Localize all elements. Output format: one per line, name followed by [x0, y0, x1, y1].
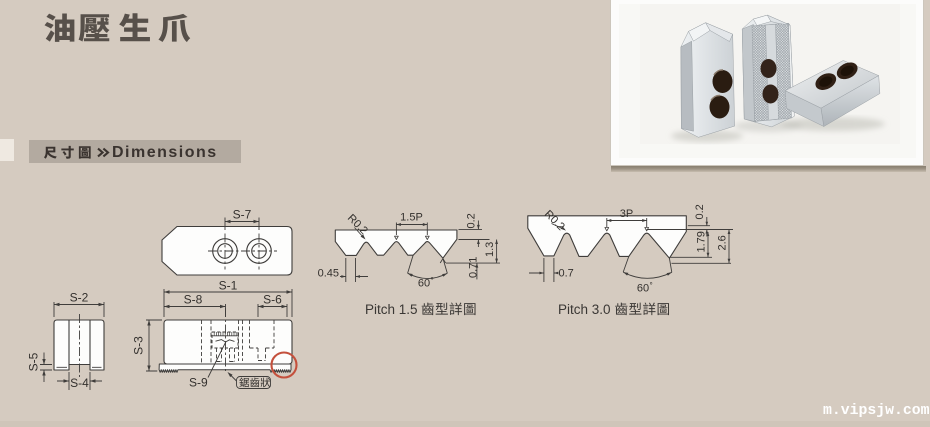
svg-text:3P: 3P: [620, 208, 633, 220]
svg-text:60: 60: [418, 278, 430, 290]
svg-text:S-1: S-1: [219, 279, 238, 293]
svg-text:2.6: 2.6: [717, 235, 729, 250]
svg-text:0.2: 0.2: [466, 213, 478, 228]
svg-text:1.5P: 1.5P: [400, 212, 423, 224]
svg-text:S-3: S-3: [132, 336, 146, 355]
svg-text:0.7: 0.7: [559, 268, 574, 280]
svg-text:°: °: [650, 281, 653, 290]
svg-text:S-7: S-7: [233, 208, 252, 222]
svg-text:S-5: S-5: [27, 352, 41, 371]
svg-text:60: 60: [637, 283, 649, 295]
svg-text:0.45: 0.45: [318, 268, 339, 280]
svg-text:Pitch 1.5: Pitch 1.5: [365, 302, 418, 317]
svg-text:S-6: S-6: [263, 293, 282, 307]
svg-text:S-2: S-2: [70, 291, 89, 305]
svg-text:0.2: 0.2: [694, 204, 706, 219]
svg-text:°: °: [431, 276, 434, 285]
svg-text:Pitch 3.0: Pitch 3.0: [558, 302, 611, 317]
svg-text:1.3: 1.3: [484, 242, 496, 257]
svg-text:0.71: 0.71: [468, 257, 480, 278]
svg-text:1.79: 1.79: [696, 231, 708, 252]
svg-text:S-4: S-4: [70, 376, 89, 390]
svg-text:S-8: S-8: [184, 293, 203, 307]
svg-text:S-9: S-9: [189, 376, 208, 390]
